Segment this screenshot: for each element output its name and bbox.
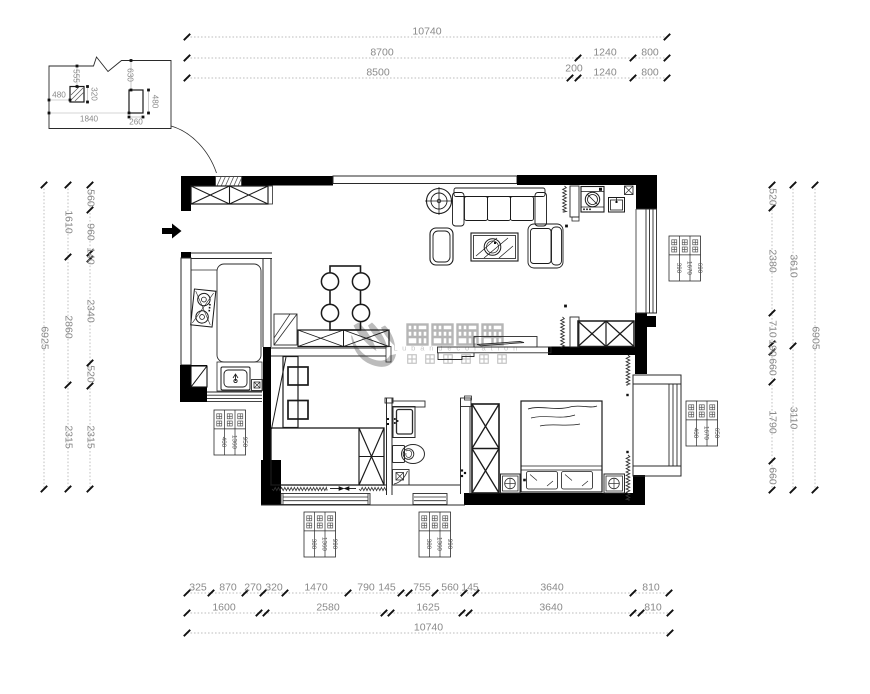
svg-text:320: 320 <box>265 582 283 594</box>
svg-text:140: 140 <box>85 247 97 265</box>
svg-text:650: 650 <box>713 428 720 439</box>
svg-text:260: 260 <box>129 118 143 127</box>
svg-text:1240: 1240 <box>593 67 617 79</box>
svg-text:480: 480 <box>52 91 66 100</box>
svg-text:190: 190 <box>767 339 779 357</box>
svg-text:200: 200 <box>565 63 583 75</box>
svg-text:380: 380 <box>425 539 432 550</box>
svg-text:755: 755 <box>413 582 431 594</box>
svg-text:1240: 1240 <box>593 47 617 59</box>
svg-text:3110: 3110 <box>788 407 800 430</box>
svg-text:10740: 10740 <box>412 26 441 38</box>
svg-text:1360: 1360 <box>230 435 237 449</box>
svg-text:8500: 8500 <box>366 67 390 79</box>
svg-text:145: 145 <box>461 582 479 594</box>
svg-text:325: 325 <box>189 582 207 594</box>
svg-text:520: 520 <box>767 188 779 206</box>
svg-text:990: 990 <box>446 539 453 550</box>
svg-text:320: 320 <box>90 87 99 101</box>
svg-text:520: 520 <box>85 365 97 383</box>
svg-text:3610: 3610 <box>788 254 800 278</box>
svg-text:145: 145 <box>378 582 396 594</box>
svg-text:555: 555 <box>72 69 81 83</box>
svg-text:710: 710 <box>767 320 779 338</box>
svg-text:480: 480 <box>151 95 160 109</box>
svg-text:6925: 6925 <box>39 326 51 350</box>
svg-text:400: 400 <box>692 428 699 439</box>
svg-text:800: 800 <box>641 67 659 79</box>
svg-text:10740: 10740 <box>414 622 443 634</box>
svg-text:660: 660 <box>767 467 779 485</box>
svg-text:960: 960 <box>85 223 97 241</box>
svg-text:810: 810 <box>644 602 662 614</box>
svg-text:560: 560 <box>441 582 459 594</box>
svg-text:1790: 1790 <box>767 410 779 434</box>
svg-text:1670: 1670 <box>685 261 692 275</box>
svg-text:660: 660 <box>767 358 779 376</box>
svg-text:870: 870 <box>219 582 237 594</box>
svg-text:810: 810 <box>642 582 660 594</box>
svg-text:790: 790 <box>357 582 375 594</box>
svg-text:2315: 2315 <box>63 425 75 449</box>
svg-text:400: 400 <box>220 437 227 448</box>
svg-text:1360: 1360 <box>435 537 442 551</box>
svg-text:1610: 1610 <box>63 210 75 234</box>
svg-text:3640: 3640 <box>539 602 563 614</box>
svg-text:2580: 2580 <box>316 602 340 614</box>
svg-text:L u b a n d e c o r a t i o: L u b a n d e c o r a t i o n <box>393 344 518 353</box>
svg-text:2860: 2860 <box>63 315 75 339</box>
svg-text:380: 380 <box>310 539 317 550</box>
svg-text:690: 690 <box>696 263 703 274</box>
svg-text:1360: 1360 <box>320 537 327 551</box>
svg-text:560: 560 <box>85 189 97 207</box>
svg-text:270: 270 <box>244 582 262 594</box>
svg-text:1670: 1670 <box>702 426 709 440</box>
svg-text:6905: 6905 <box>810 326 822 350</box>
svg-text:2380: 2380 <box>767 249 779 273</box>
svg-text:990: 990 <box>331 539 338 550</box>
svg-text:1600: 1600 <box>212 602 236 614</box>
svg-text:2340: 2340 <box>85 299 97 323</box>
svg-text:1840: 1840 <box>80 115 99 124</box>
svg-text:630: 630 <box>126 68 135 82</box>
svg-text:1470: 1470 <box>304 582 328 594</box>
svg-text:950: 950 <box>241 437 248 448</box>
svg-text:3640: 3640 <box>540 582 564 594</box>
svg-text:2315: 2315 <box>85 425 97 449</box>
svg-text:390: 390 <box>675 263 682 274</box>
svg-text:800: 800 <box>641 47 659 59</box>
svg-text:8700: 8700 <box>370 47 394 59</box>
svg-text:1625: 1625 <box>416 602 440 614</box>
